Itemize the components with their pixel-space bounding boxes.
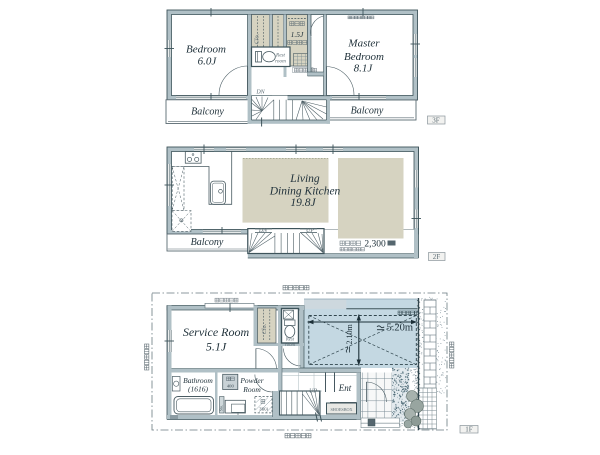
svg-text:5.20m: 5.20m [387, 323, 414, 334]
svg-text:room: room [275, 59, 286, 65]
svg-text:SHOESBOX: SHOESBOX [330, 407, 352, 412]
svg-text:3F: 3F [432, 116, 440, 124]
svg-text:DN: DN [258, 228, 268, 234]
svg-text:Powder: Powder [239, 376, 263, 385]
svg-text:Clo.: Clo. [262, 324, 268, 334]
svg-text:Balcony: Balcony [191, 237, 224, 248]
svg-text:Rest: Rest [285, 338, 295, 343]
svg-text:Balcony: Balcony [351, 106, 384, 117]
svg-text:Balcony: Balcony [191, 107, 224, 118]
svg-text:2F: 2F [433, 253, 441, 261]
svg-text:room: room [285, 343, 295, 348]
svg-text:Bedroom: Bedroom [186, 44, 226, 56]
svg-text:1F: 1F [465, 426, 473, 434]
svg-text:1.5J: 1.5J [291, 30, 304, 39]
svg-text:2.10m: 2.10m [345, 324, 354, 345]
svg-text:400: 400 [227, 383, 235, 388]
svg-text:5.1J: 5.1J [206, 340, 227, 354]
svg-text:Ent: Ent [338, 383, 352, 393]
svg-text:Living: Living [289, 173, 320, 185]
svg-text:TAKA: TAKA [259, 408, 269, 412]
svg-text:8.1J: 8.1J [354, 63, 374, 75]
svg-text:2,300: 2,300 [364, 240, 386, 250]
svg-text:(1616): (1616) [188, 385, 208, 394]
svg-text:Bedroom: Bedroom [344, 51, 384, 63]
svg-text:UP: UP [309, 389, 317, 395]
svg-text:Sto.: Sto. [219, 405, 224, 411]
svg-text:6.0J: 6.0J [198, 56, 218, 68]
svg-text:19.8J: 19.8J [290, 197, 316, 209]
svg-text:UP: UP [306, 228, 314, 234]
svg-text:Clo.: Clo. [255, 34, 261, 44]
svg-text:Dining Kitchen: Dining Kitchen [269, 186, 341, 198]
svg-text:DN: DN [255, 90, 265, 96]
svg-text:Service Room: Service Room [183, 325, 250, 339]
svg-text:Master: Master [347, 38, 380, 50]
svg-text:Room: Room [242, 385, 261, 394]
